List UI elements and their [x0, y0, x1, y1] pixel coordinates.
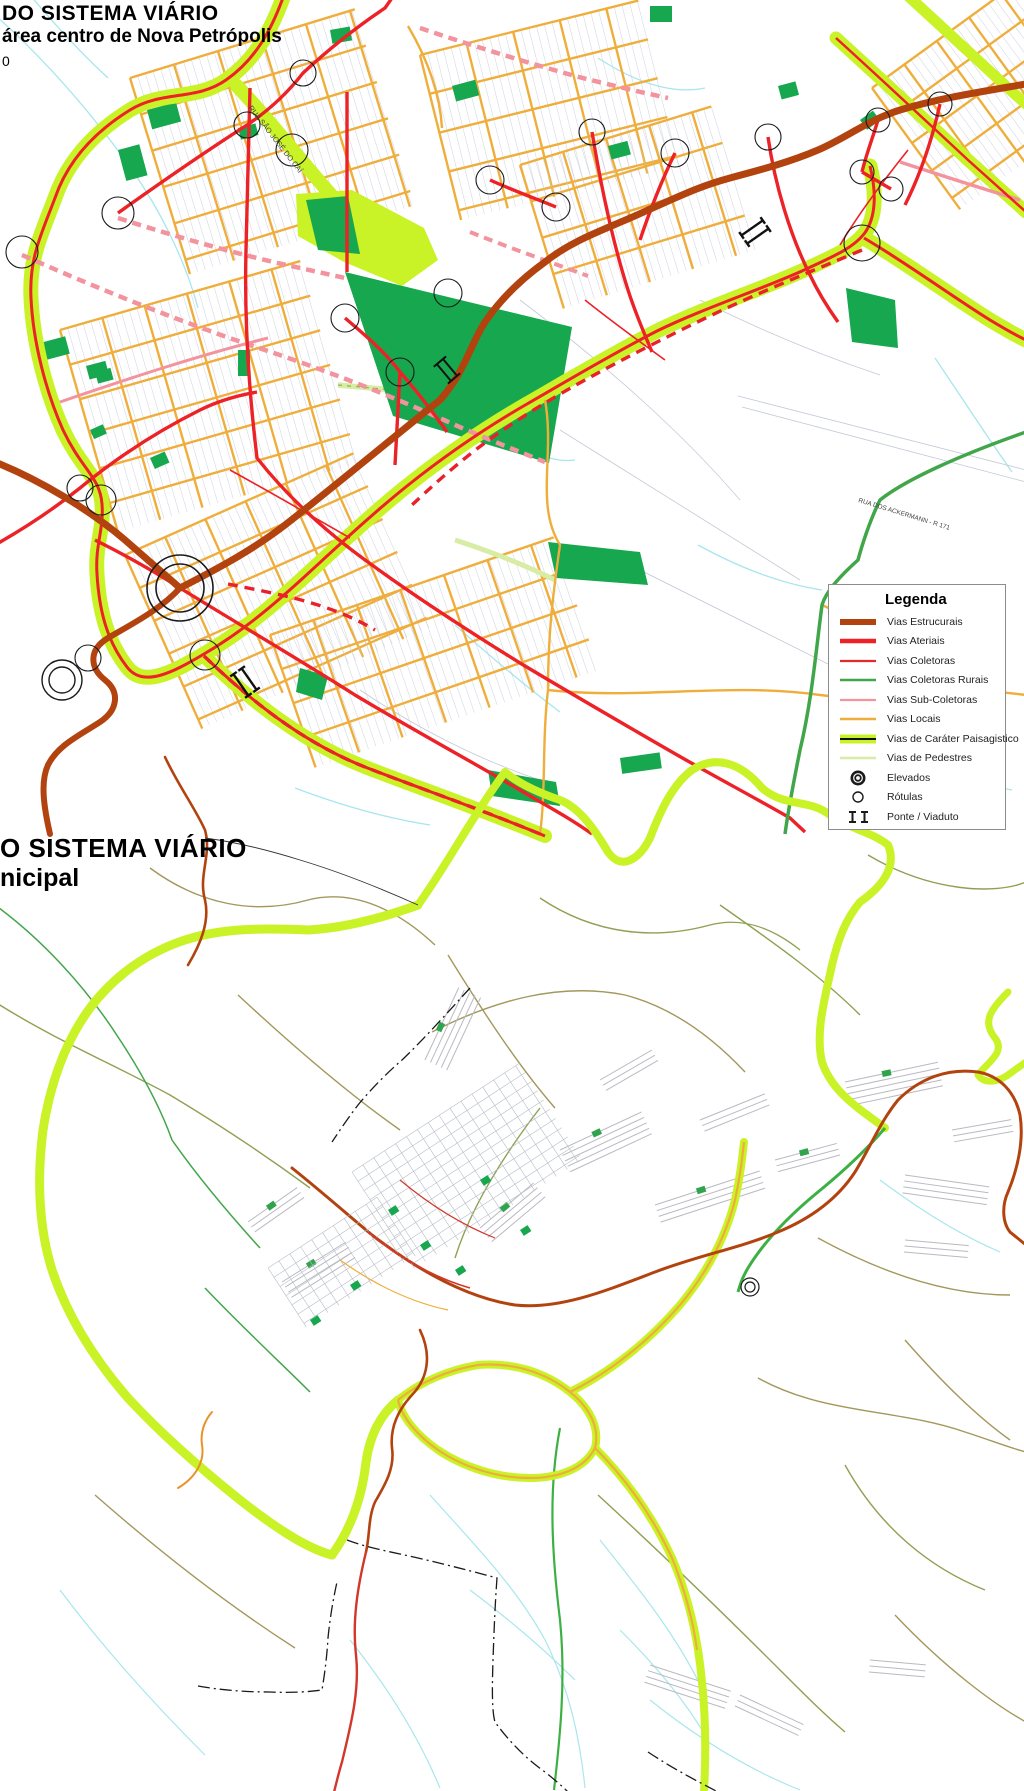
street-label: RUA SÃO JOSÉ DO CAÍ — [246, 104, 305, 176]
legend-item: Ponte / Viaduto — [829, 807, 1005, 827]
map2-title-line2: nicipal — [0, 864, 247, 893]
elevado-municipal — [741, 1278, 759, 1296]
legend-label: Ponte / Viaduto — [887, 811, 959, 823]
legend-label: Elevados — [887, 772, 930, 784]
legend-label: Vias Locais — [887, 713, 941, 725]
stream-lines-municipal — [60, 1180, 1000, 1790]
legend-item: Vias Locais — [829, 710, 1005, 730]
town-core — [268, 1063, 582, 1327]
green-collector-descent — [738, 1128, 885, 1292]
rural-collectors-municipal — [0, 905, 562, 1790]
map1-title: DO SISTEMA VIÁRIO área centro de Nova Pe… — [2, 2, 282, 69]
legend-swatch-pedestres-icon — [837, 750, 879, 766]
map2-municipal — [0, 757, 1024, 1791]
map1-title-line1: DO SISTEMA VIÁRIO — [2, 2, 282, 26]
legend-label: Vias de Pedestres — [887, 752, 972, 764]
legend-item: Vias Coletoras — [829, 651, 1005, 671]
legend-label: Vias Ateriais — [887, 635, 945, 647]
legend-item: Vias Estrucurais — [829, 612, 1005, 632]
legend-item: Vias Sub-Coletoras — [829, 690, 1005, 710]
legend-swatch-estruturais-icon — [837, 614, 879, 630]
legend-swatch-coletoras-icon — [837, 653, 879, 669]
bridge-symbols — [230, 217, 771, 698]
legend-swatch-arteriais-icon — [837, 633, 879, 649]
map2-title: O SISTEMA VIÁRIO nicipal — [0, 833, 247, 893]
legend-swatch-ponte-viaduto-icon — [837, 809, 879, 825]
legend-swatch-coletoras-rurais-icon — [837, 672, 879, 688]
legend-swatch-sub-coletoras-icon — [837, 692, 879, 708]
map2-title-line1: O SISTEMA VIÁRIO — [0, 833, 247, 864]
legend-swatch-elevados-icon — [837, 770, 879, 786]
legend-item: Vias de Caráter Paisagistico — [829, 729, 1005, 749]
legend-label: Vias de Caráter Paisagistico — [887, 733, 1019, 745]
legend-label: Vias Coletoras Rurais — [887, 674, 988, 686]
legend-label: Vias Coletoras — [887, 655, 955, 667]
legend-label: Vias Estrucurais — [887, 616, 963, 628]
legend-item: Elevados — [829, 768, 1005, 788]
legend-label: Rótulas — [887, 791, 923, 803]
map1-scale-fragment: 0 — [2, 53, 282, 69]
legend-item: Vias Ateriais — [829, 632, 1005, 652]
paisagistico-municipal — [40, 762, 1024, 1791]
structural-roads-municipal — [165, 757, 1024, 1791]
legend-title: Legenda — [885, 591, 1005, 608]
map-canvas: RUA SÃO JOSÉ DO CAÍRUA DOS ACKERMANN - R… — [0, 0, 1024, 1791]
legend-rows: Vias EstrucuraisVias AteriaisVias Coleto… — [829, 612, 1005, 827]
legend-swatch-locais-icon — [837, 711, 879, 727]
legend-box: Legenda Vias EstrucuraisVias AteriaisVia… — [828, 584, 1006, 830]
legend-swatch-rotulas-icon — [837, 789, 879, 805]
legend-label: Vias Sub-Coletoras — [887, 694, 977, 706]
legend-item: Vias de Pedestres — [829, 749, 1005, 769]
legend-item: Vias Coletoras Rurais — [829, 671, 1005, 691]
rural-roads — [0, 855, 1024, 1732]
municipal-boundary — [198, 988, 718, 1791]
map1-title-line2: área centro de Nova Petrópolis — [2, 26, 282, 48]
legend-swatch-paisagistico-icon — [837, 731, 879, 747]
legend-item: Rótulas — [829, 788, 1005, 808]
